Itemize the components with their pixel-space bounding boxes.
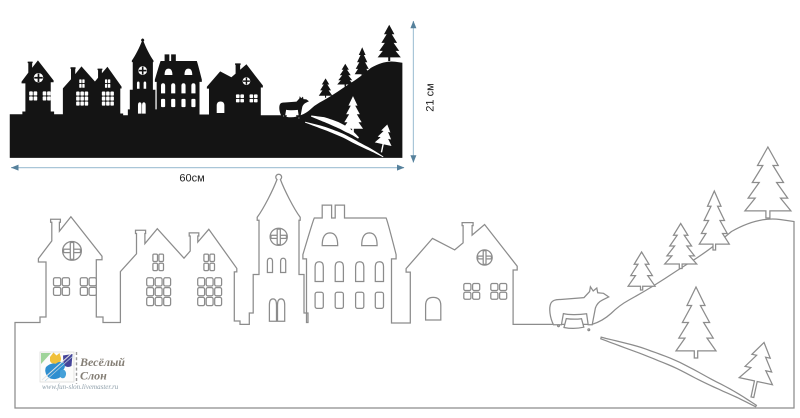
svg-text:www.fun-slon.livemaster.ru: www.fun-slon.livemaster.ru [42,383,119,391]
svg-text:Слон: Слон [80,369,107,383]
svg-text:21 см: 21 см [425,83,437,111]
svg-text:60см: 60см [179,173,204,185]
svg-text:Весёлый: Весёлый [79,355,125,369]
